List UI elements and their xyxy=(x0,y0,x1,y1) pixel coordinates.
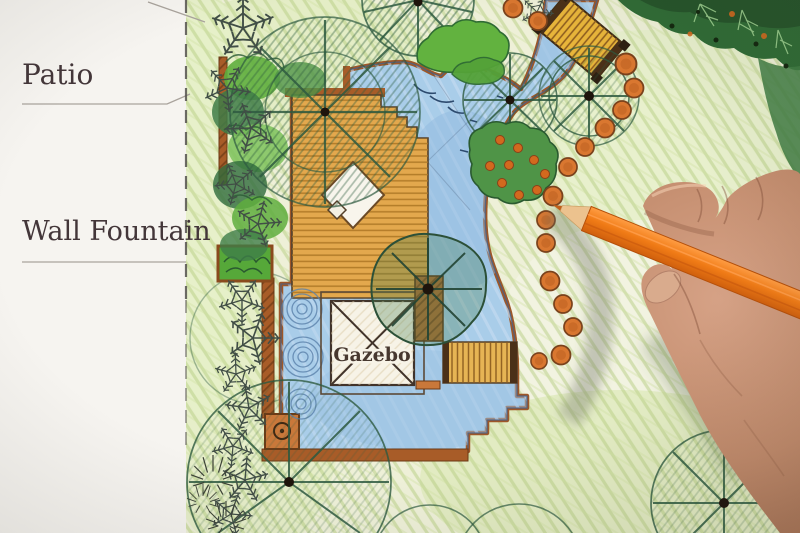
photo-vignette xyxy=(0,0,800,533)
landscape-plan-photo: Gazebo xyxy=(0,0,800,533)
